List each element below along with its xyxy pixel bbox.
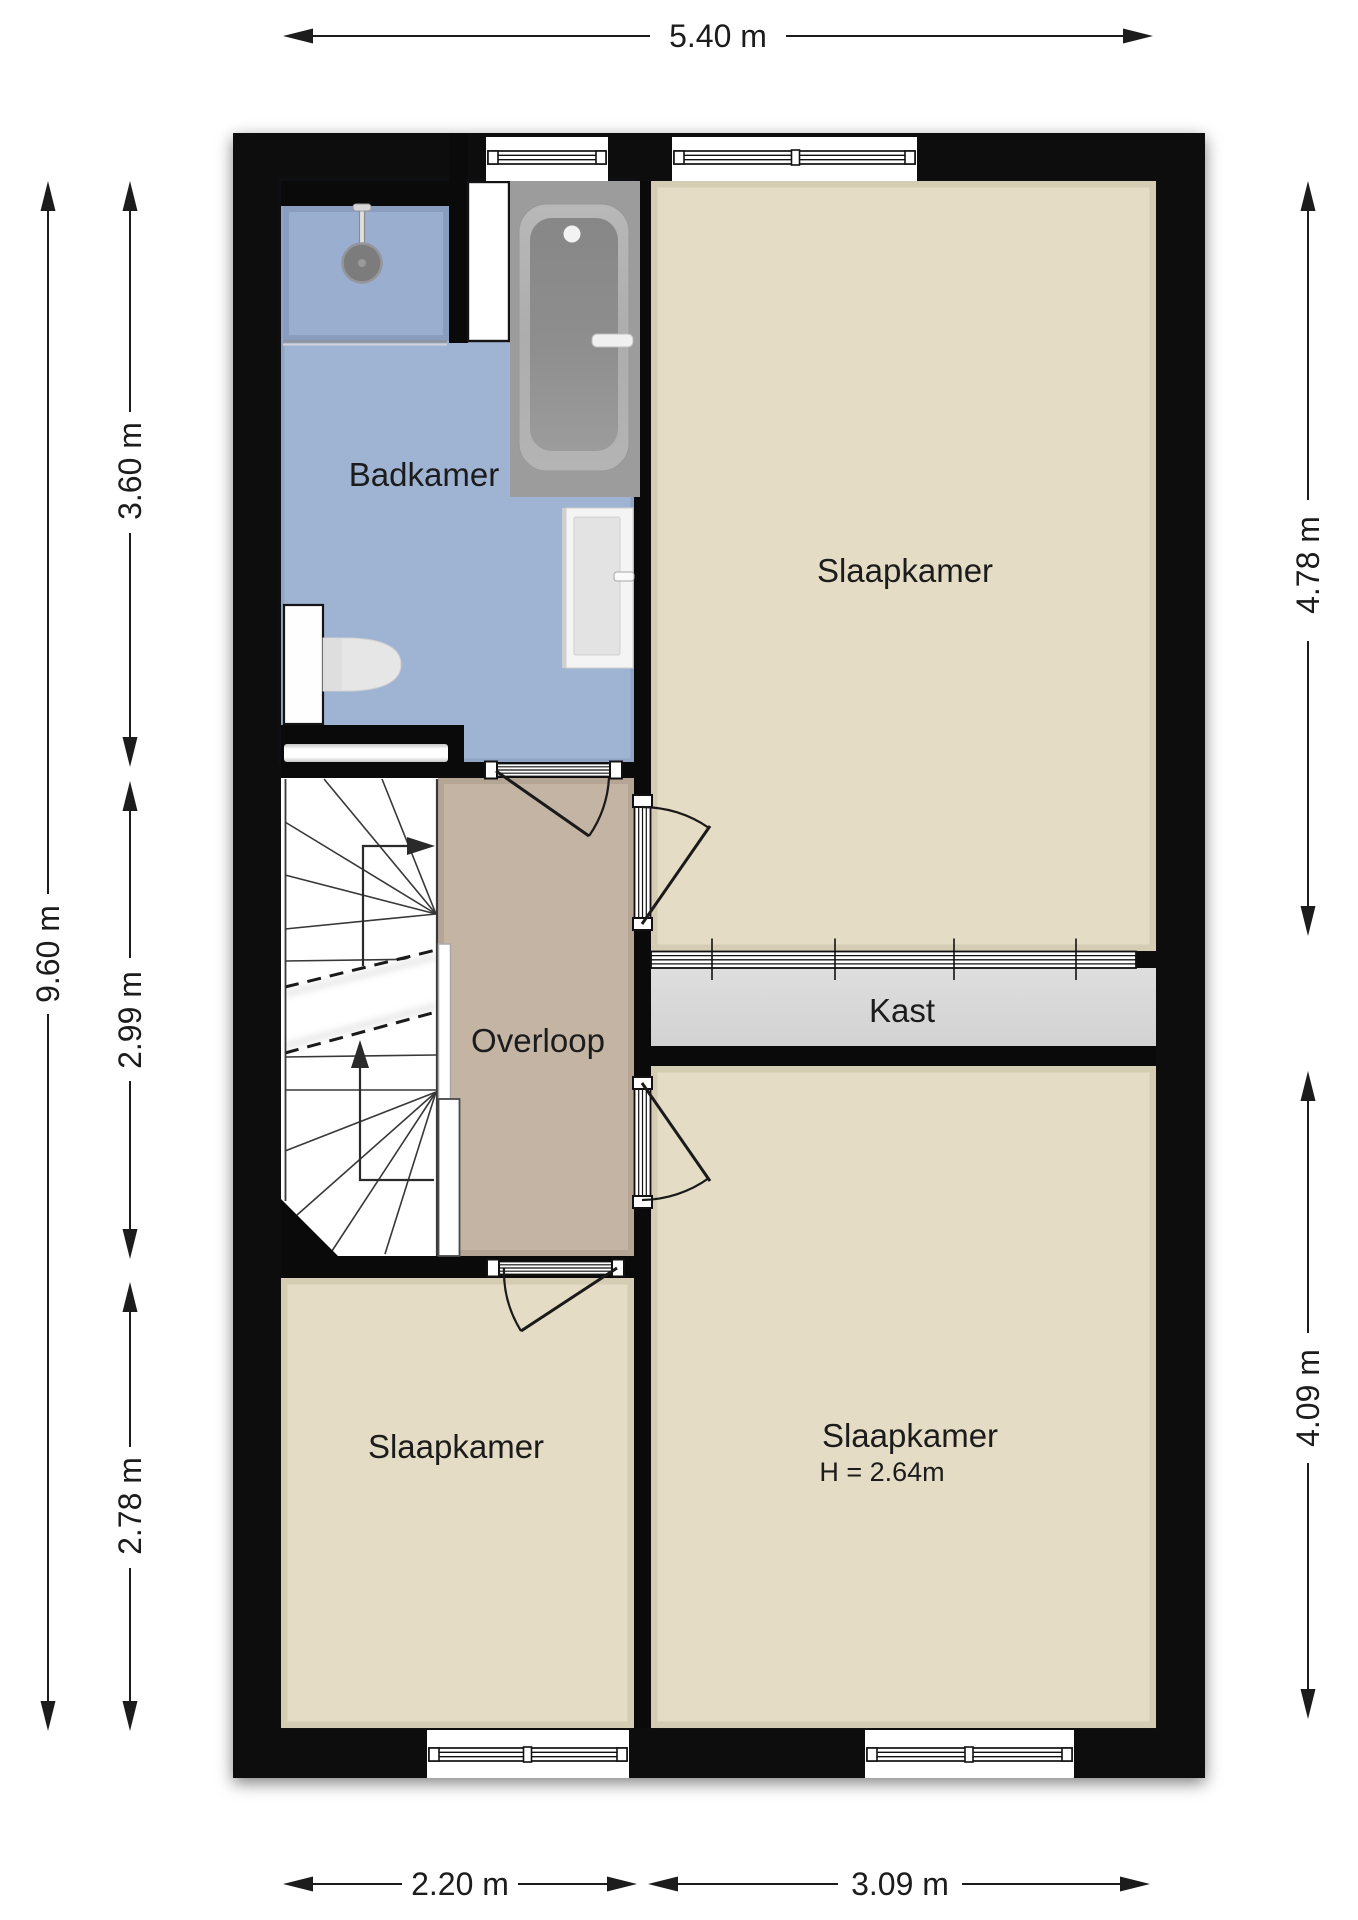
- svg-text:Badkamer: Badkamer: [349, 456, 499, 493]
- svg-text:Slaapkamer: Slaapkamer: [822, 1417, 998, 1454]
- svg-text:Slaapkamer: Slaapkamer: [817, 552, 993, 589]
- svg-text:2.78 m: 2.78 m: [112, 1457, 148, 1555]
- svg-text:3.09 m: 3.09 m: [851, 1866, 949, 1902]
- svg-text:5.40 m: 5.40 m: [669, 18, 767, 54]
- svg-text:2.99 m: 2.99 m: [112, 971, 148, 1069]
- svg-text:2.20 m: 2.20 m: [411, 1866, 509, 1902]
- svg-text:9.60 m: 9.60 m: [30, 905, 66, 1003]
- svg-text:H = 2.64m: H = 2.64m: [819, 1457, 944, 1487]
- svg-text:4.09 m: 4.09 m: [1290, 1349, 1326, 1447]
- svg-text:Overloop: Overloop: [471, 1022, 605, 1059]
- svg-text:Slaapkamer: Slaapkamer: [368, 1428, 544, 1465]
- svg-text:Kast: Kast: [869, 992, 935, 1029]
- svg-text:3.60 m: 3.60 m: [112, 422, 148, 520]
- svg-text:4.78 m: 4.78 m: [1290, 516, 1326, 614]
